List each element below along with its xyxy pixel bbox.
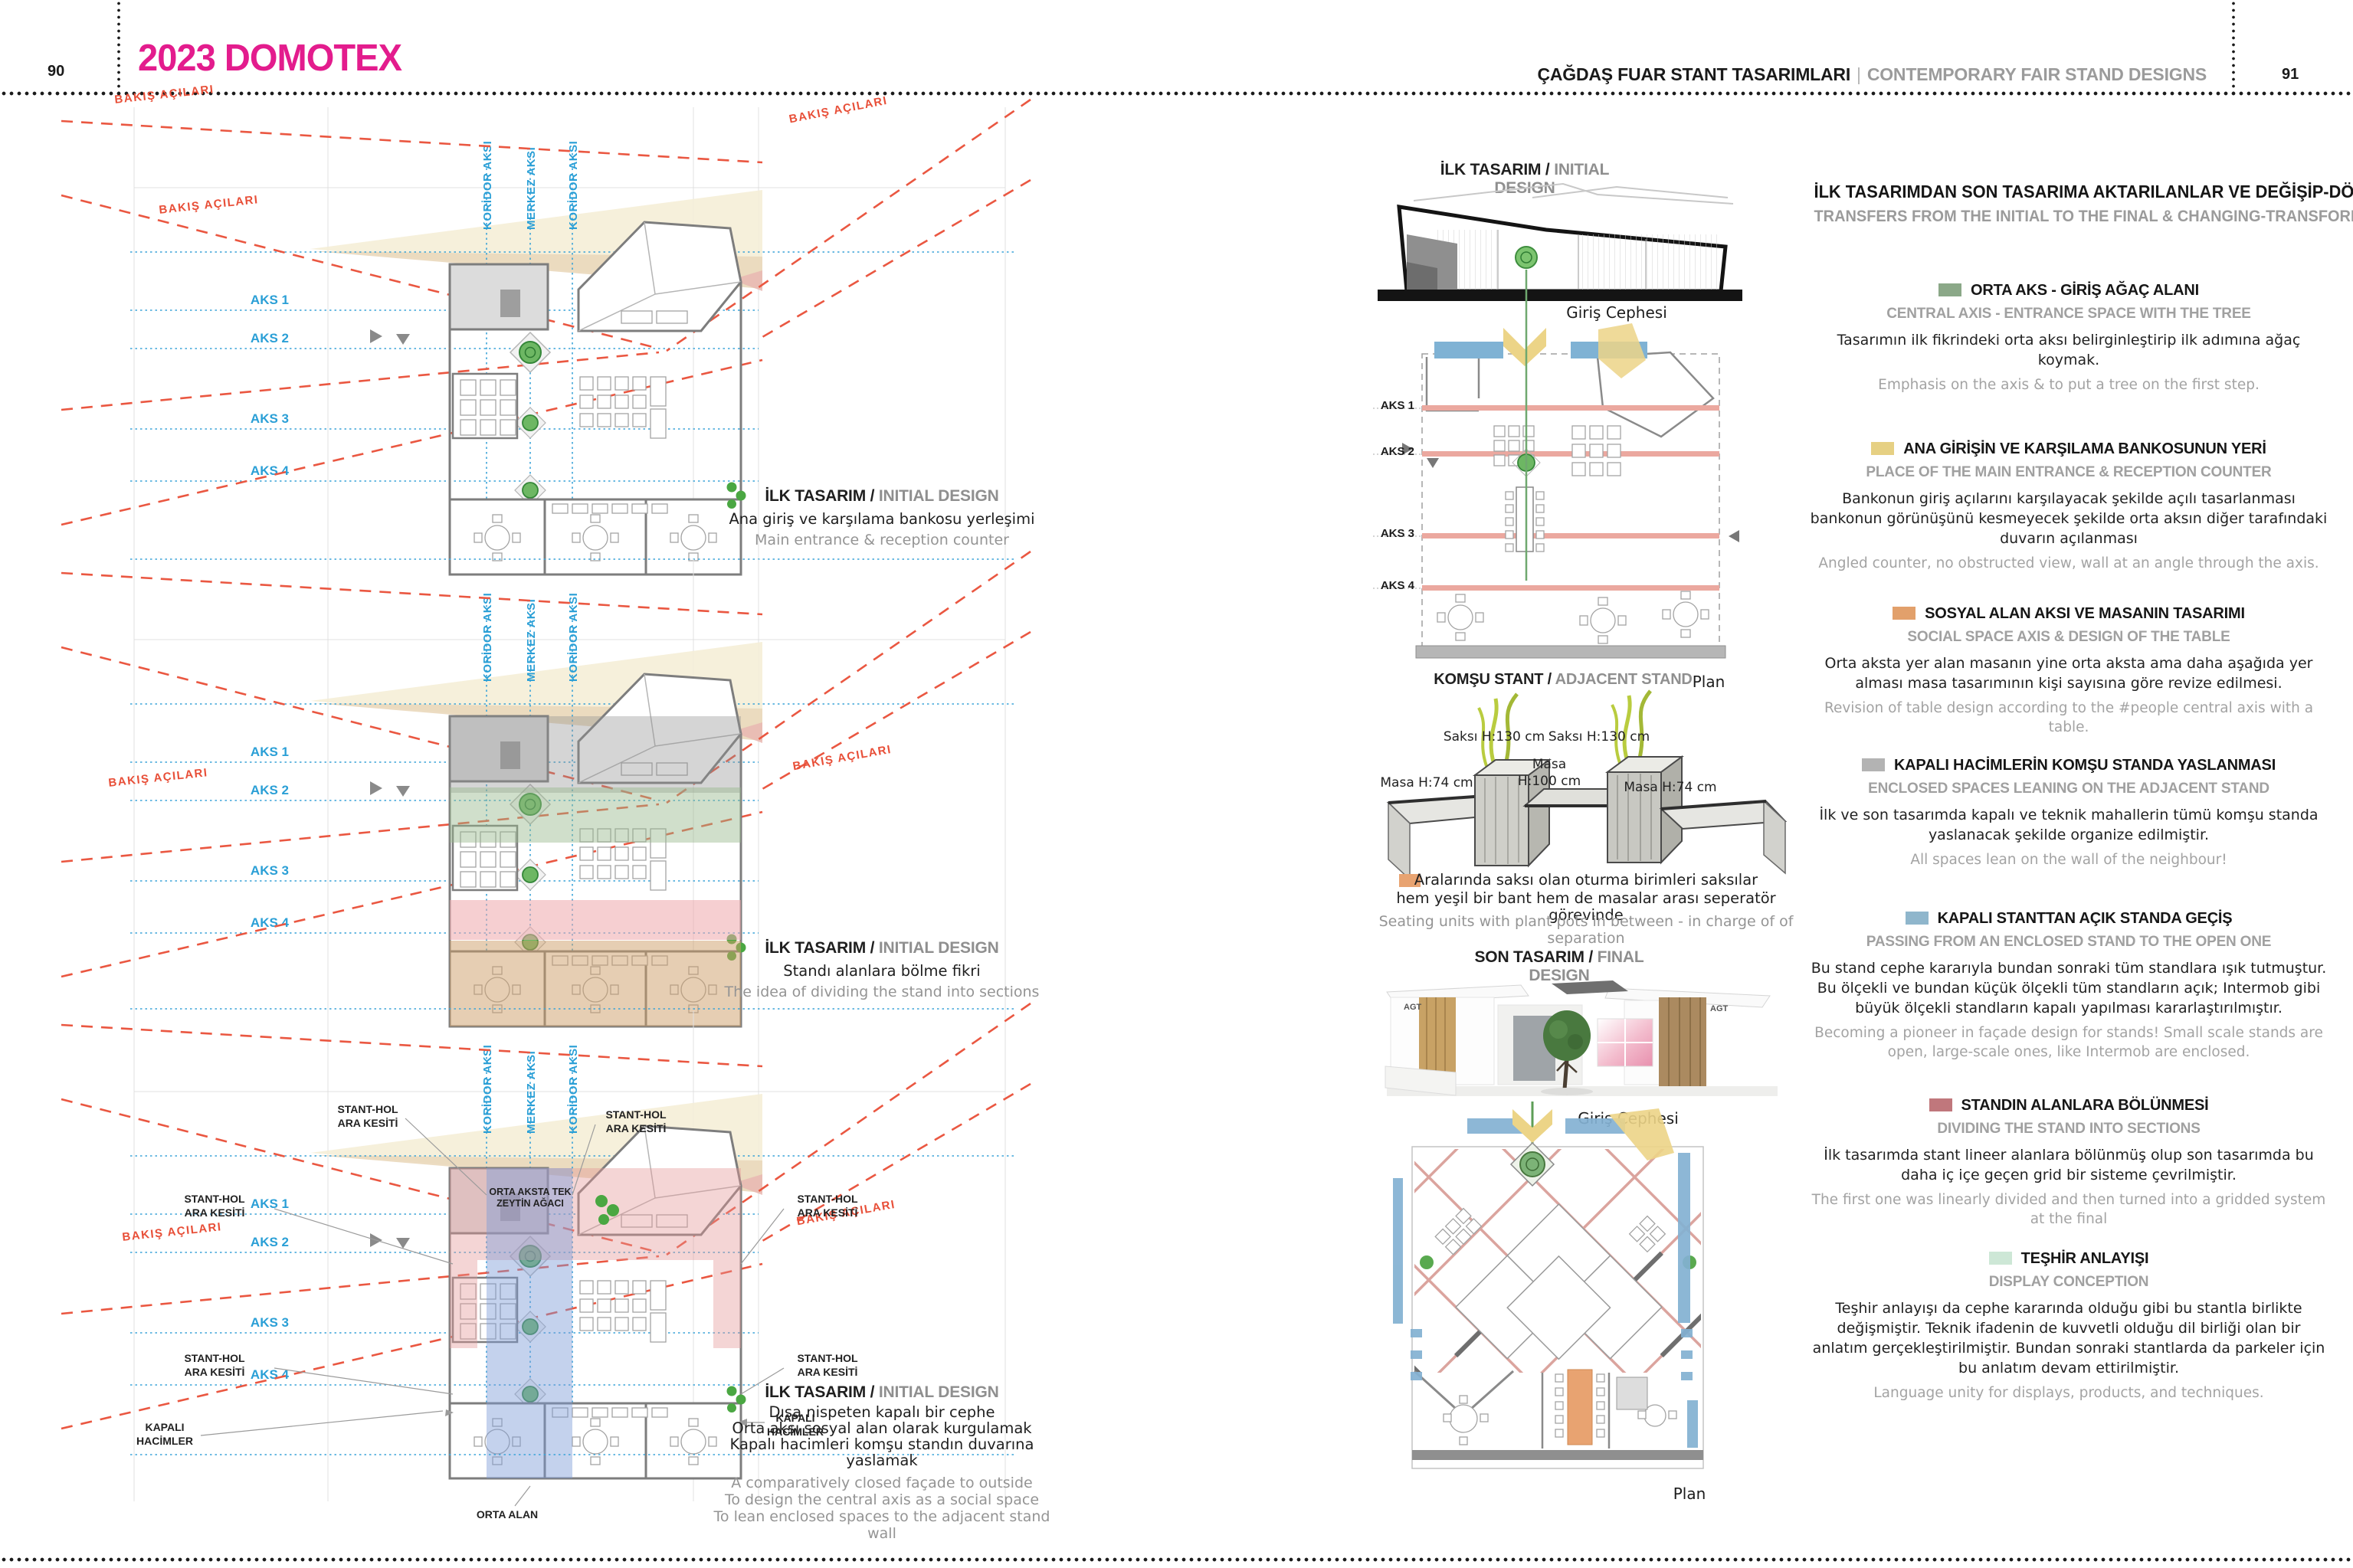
brand-logo: AGT [1404,1003,1422,1012]
legend-title-en: TRANSFERS FROM THE INITIAL TO THE FINAL … [1814,208,2324,226]
initial-plan [1373,270,1739,658]
legend-swatch [1938,283,1961,296]
initial-facade-and-plan [1364,184,1808,705]
enclosed-volumes-label: KAPALI [145,1421,184,1433]
plan-label: Plan [1678,673,1739,691]
legend-item-display-conception: TEŞHİR ANLAYIŞI DISPLAY CONCEPTION Teşhi… [1808,1250,2329,1403]
footer-dotted-rule [0,1557,2353,1563]
caption-text-tr: Standı alanlara bölme fikri [721,963,1043,980]
final-plan [1371,1095,1801,1524]
view-angles-label: BAKIŞ AÇILARI [122,1220,223,1244]
facade-elevation [1378,184,1742,301]
render-drawing: AGT AGT [1385,980,1778,1096]
table-height-label: Masa H:74 cm [1609,780,1732,795]
view-angles-label: BAKIŞ AÇILARI [788,94,888,126]
section-header-tr: ÇAĞDAŞ FUAR STANT TASARIMLARI [1537,64,1850,84]
plan3-caption: İLK TASARIM / INITIAL DESIGN Dışa nispet… [702,1383,1062,1542]
olive-tree-label: ORTA AKSTA TEK [489,1187,571,1197]
legend-item-open-stand: KAPALI STANTTAN AÇIK STANDA GEÇİŞ PASSIN… [1808,910,2329,1062]
plan1-caption: İLK TASARIM / INITIAL DESIGN Ana giriş v… [721,487,1043,548]
legend-swatch [1989,1252,2012,1265]
table-height-label: Masa [1496,757,1603,772]
caption-title: İLK TASARIM / INITIAL DESIGN [702,1383,1062,1402]
tree-icon [1520,1152,1545,1177]
section-header-en: CONTEMPORARY FAIR STAND DESIGNS [1867,64,2207,84]
aks-1-label: AKS 1 [1347,399,1414,412]
legend-item-enclosed-spaces: KAPALI HACİMLERİN KOMŞU STANDA YASLANMAS… [1808,757,2329,869]
section-header-separator: | [1850,64,1867,84]
stant-hol-label: STANT-HOL [184,1352,245,1364]
stant-hol-label: STANT-HOL [797,1352,858,1364]
stant-hol-label: STANT-HOL [797,1193,858,1205]
stant-hol-label: STANT-HOL [337,1103,398,1115]
legend-swatch [1862,758,1885,771]
marker-triangle-left [1729,530,1739,542]
svg-text:ARA KESİTİ: ARA KESİTİ [798,1206,858,1219]
tree-icon [1516,247,1537,268]
view-angles-label: BAKIŞ AÇILARI [159,193,260,217]
plan2-caption: İLK TASARIM / INITIAL DESIGN Standı alan… [721,939,1043,1000]
caption-title: İLK TASARIM / INITIAL DESIGN [721,487,1043,506]
brand-title: 2023 DOMOTEX [138,37,401,80]
margin-divider-right [2230,0,2237,93]
svg-text:ARA KESİTİ: ARA KESİTİ [798,1366,858,1378]
aks-2-label: AKS 2 [1347,445,1414,458]
stant-hol-label: STANT-HOL [184,1193,245,1205]
svg-text:ARA KESİTİ: ARA KESİTİ [606,1122,667,1134]
svg-text:ARA KESİTİ: ARA KESİTİ [185,1366,245,1378]
page-number-left: 90 [48,63,64,80]
table-height-label: H:100 cm [1496,774,1603,789]
caption-text-tr: Ana giriş ve karşılama bankosu yerleşimi [721,511,1043,528]
header-dotted-rule [0,90,2353,97]
table-height-label: Masa H:74 cm [1365,775,1488,791]
plan-label: Plan [1659,1485,1720,1503]
page-number-right: 91 [2282,66,2299,83]
legend-item-main-entrance: ANA GİRİŞİN VE KARŞILAMA BANKOSUNUN YERİ… [1808,440,2329,573]
bench-desc-tr: Aralarında saksı olan oturma birimleri s… [1371,872,1801,889]
legend-item-social-axis: SOSYAL ALAN AKSI VE MASANIN TASARIMI SOC… [1808,605,2329,737]
caption-title: İLK TASARIM / INITIAL DESIGN [721,939,1043,957]
caption-text-en: Main entrance & reception counter [721,532,1043,548]
planter-height-label: Saksı H:130 cm [1433,729,1555,745]
legend-title-tr: İLK TASARIMDAN SON TASARIMA AKTARILANLAR… [1814,182,2324,202]
entrance-facade-label: Giriş Cephesi [1555,303,1678,322]
legend-header: İLK TASARIMDAN SON TASARIMA AKTARILANLAR… [1801,182,2337,226]
svg-text:ZEYTİN AĞACI: ZEYTİN AĞACI [496,1197,564,1209]
legend-swatch [1929,1098,1952,1111]
legend-swatch [1871,442,1894,455]
central-area-label: ORTA ALAN [477,1508,538,1521]
legend-swatch [1906,912,1929,925]
legend-item-dividing-stand: STANDIN ALANLARA BÖLÜNMESİ DIVIDING THE … [1808,1097,2329,1229]
legend-item-central-axis: ORTA AKS - GİRİŞ AĞAÇ ALANI CENTRAL AXIS… [1808,282,2329,394]
svg-text:HACİMLER: HACİMLER [136,1435,193,1447]
caption-text-tr: Dışa nispeten kapalı bir cephe [702,1404,1062,1420]
aks-3-label: AKS 3 [1347,527,1414,540]
view-angles-label: BAKIŞ AÇILARI [114,83,215,106]
section-header: ÇAĞDAŞ FUAR STANT TASARIMLARI|CONTEMPORA… [1456,64,2207,85]
legend-swatch [1893,607,1915,620]
stant-hol-label: STANT-HOL [605,1108,667,1121]
margin-divider-left [116,0,122,93]
svg-text:ARA KESİTİ: ARA KESİTİ [185,1206,245,1219]
aks-4-label: AKS 4 [1347,579,1414,592]
caption-text-en: A comparatively closed façade to outside [702,1475,1062,1491]
magazine-spread: 90 2023 DOMOTEX ÇAĞDAŞ FUAR STANT TASARI… [0,0,2353,1568]
view-angles-label: BAKIŞ AÇILARI [108,766,209,790]
brand-logo: AGT [1710,1004,1729,1013]
svg-text:ARA KESİTİ: ARA KESİTİ [338,1117,398,1129]
planter-height-label: Saksı H:130 cm [1538,729,1660,745]
bench-desc-en: Seating units with plant pots in between… [1371,913,1801,947]
caption-text-en: The idea of dividing the stand into sect… [721,984,1043,1000]
view-angles-label: BAKIŞ AÇILARI [791,743,893,773]
adjacent-stand-caption: KOMŞU STANT / ADJACENT STAND [1425,671,1701,694]
